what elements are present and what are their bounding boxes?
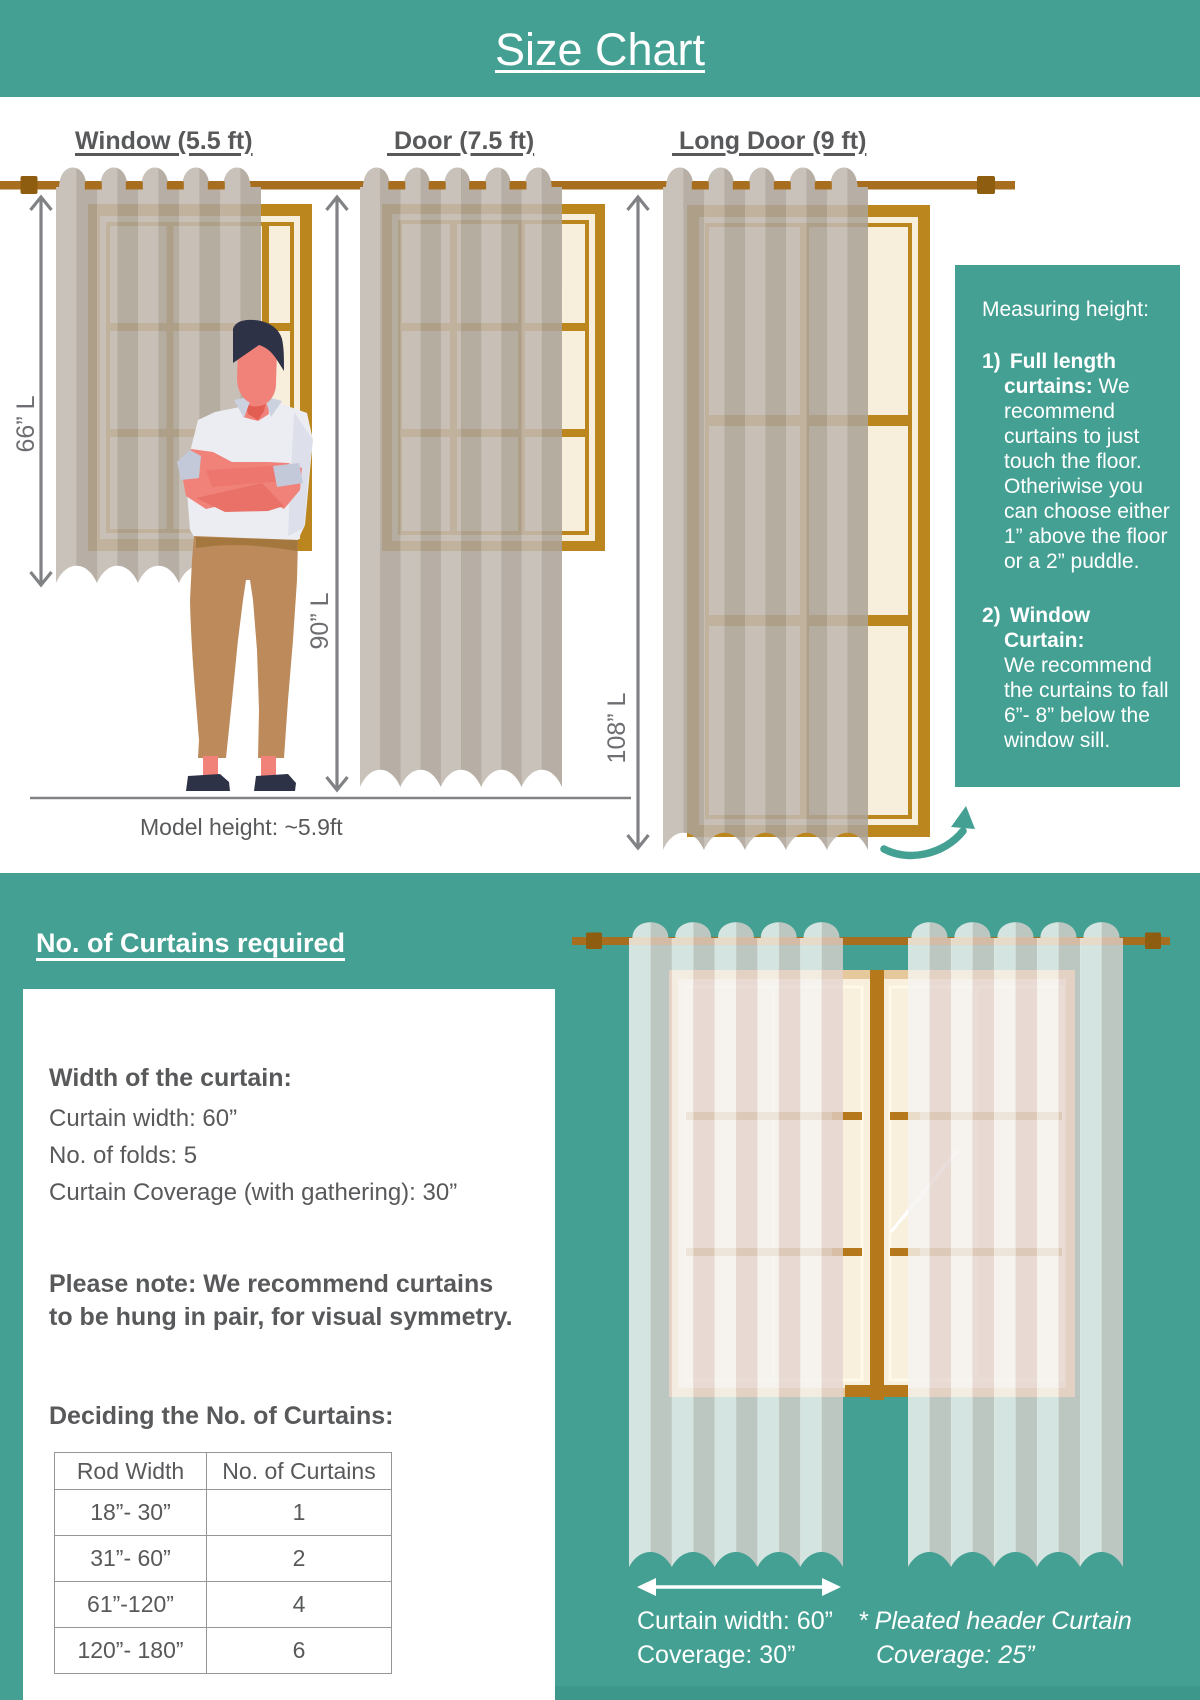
- svg-text:108” L: 108” L: [603, 692, 631, 763]
- svg-text:66” L: 66” L: [12, 395, 40, 452]
- svg-text:90” L: 90” L: [306, 592, 334, 649]
